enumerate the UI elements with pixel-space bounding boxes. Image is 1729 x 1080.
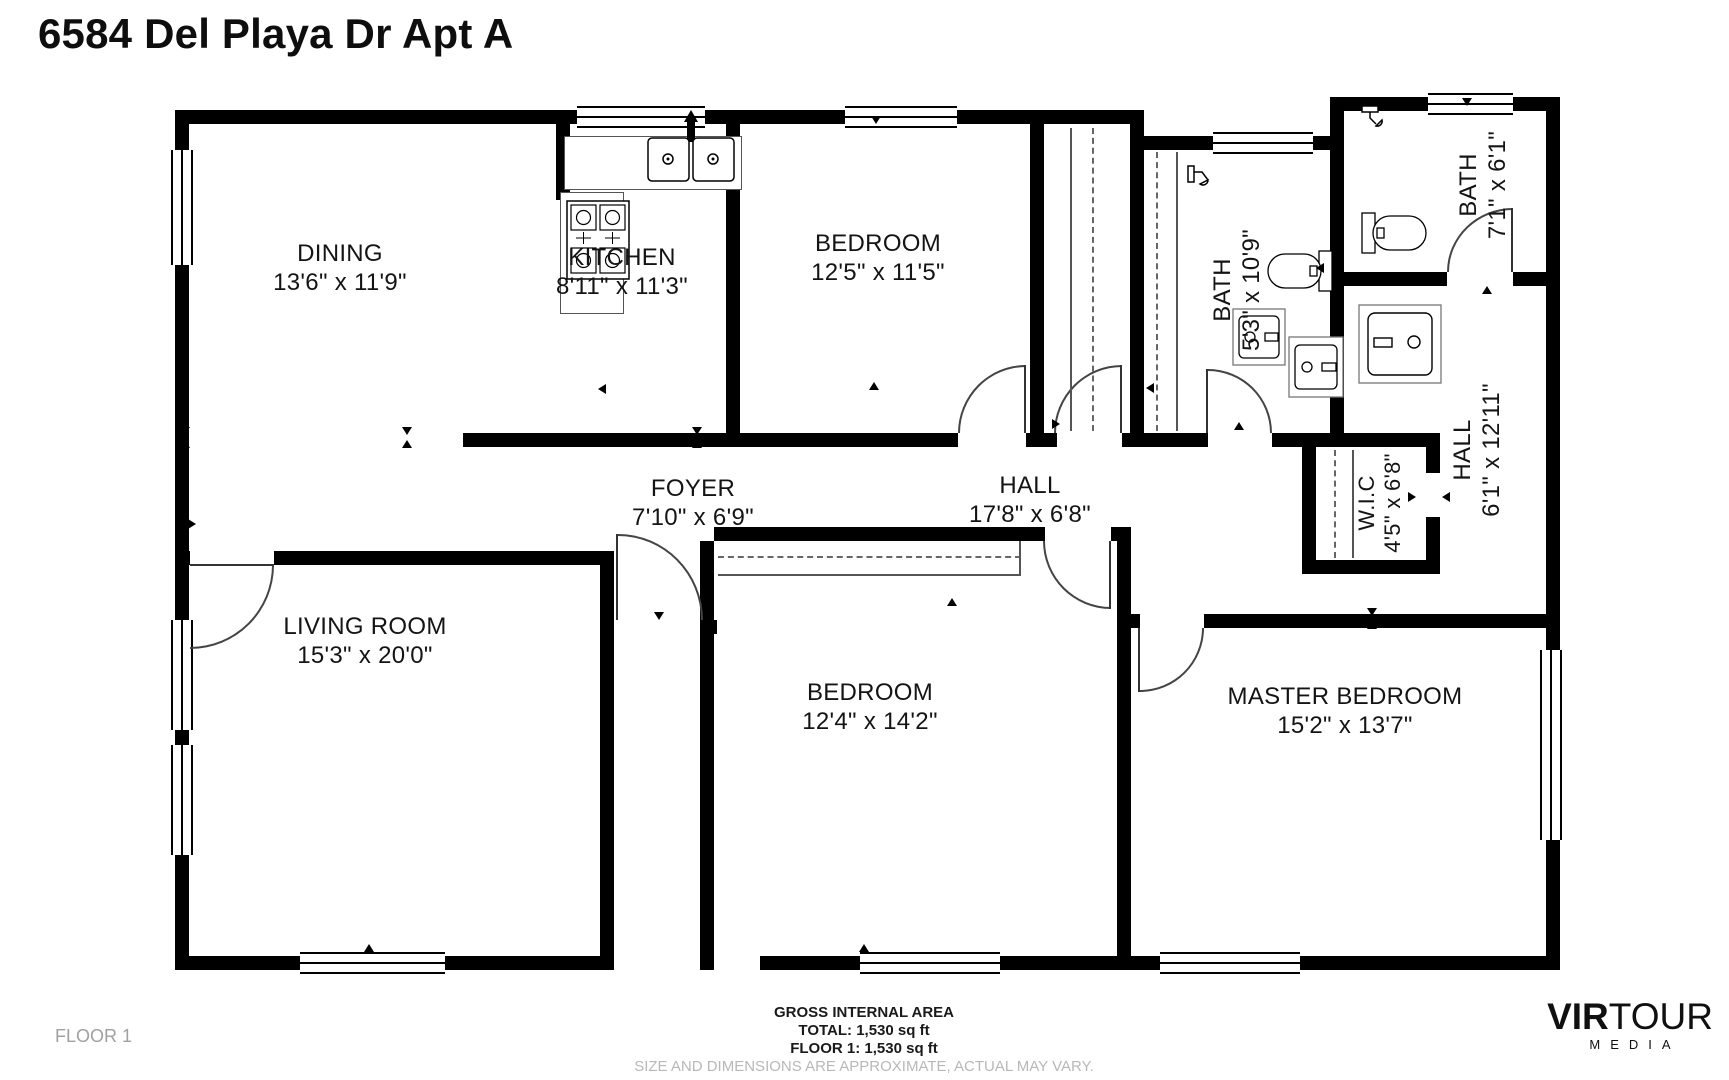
toilet-icon (1360, 212, 1428, 254)
wall-marker (402, 427, 412, 435)
wall (760, 956, 860, 970)
wall (1546, 840, 1560, 970)
wall (175, 551, 190, 565)
room-label-bath-main: BATH5'3" x 10'9" (1208, 229, 1266, 351)
door-arc (1054, 365, 1122, 433)
wall (600, 551, 614, 956)
wall-marker (188, 519, 196, 529)
closet-rod (718, 556, 1021, 558)
wall (1000, 956, 1160, 970)
wall (714, 527, 1045, 541)
room-label-bath-small: BATH7'1" x 6'1" (1454, 131, 1512, 239)
room-label-kitchen: KITCHEN8'11" x 11'3" (556, 243, 688, 301)
room-label-hall-main: HALL17'8" x 6'8" (969, 471, 1091, 529)
wall-marker (738, 434, 746, 444)
wall-marker (180, 440, 190, 448)
door-leaf (1138, 628, 1140, 692)
sink-icon (1288, 336, 1344, 398)
door-leaf (1120, 365, 1122, 433)
room-label-bedroom-top: BEDROOM12'5" x 11'5" (811, 229, 945, 287)
wall (175, 110, 577, 124)
shower-icon (1360, 104, 1390, 134)
wall-marker (1482, 286, 1492, 294)
wall (1111, 527, 1131, 541)
door-leaf (1206, 369, 1208, 433)
wall (175, 110, 189, 150)
sink-icon (1358, 304, 1442, 384)
wall (1300, 956, 1560, 970)
area-summary: GROSS INTERNAL AREA TOTAL: 1,530 sq ft F… (634, 1004, 1094, 1076)
wall (463, 433, 958, 447)
wall-marker (859, 944, 869, 952)
door-arc (1140, 628, 1204, 692)
closet-line (1070, 128, 1072, 431)
wall (1117, 628, 1131, 970)
room-label-bedroom-bottom: BEDROOM12'4" x 14'2" (802, 678, 938, 736)
wall-marker (1234, 422, 1244, 430)
wall-marker (1316, 263, 1324, 273)
wall-marker (366, 112, 376, 120)
window (171, 745, 193, 855)
wall-marker (692, 440, 702, 448)
shower-curtain-line (1156, 152, 1158, 431)
room-label-dining: DINING13'6" x 11'9" (273, 239, 407, 297)
room-label-master: MASTER BEDROOM15'2" x 13'7" (1228, 682, 1463, 740)
logo-subtitle: MEDIA (1532, 1037, 1728, 1052)
gross-area-title: GROSS INTERNAL AREA (634, 1004, 1094, 1022)
wall-marker (1462, 98, 1472, 106)
wall-marker (871, 116, 881, 124)
wall-marker (947, 598, 957, 606)
wall-marker (1367, 608, 1377, 616)
door-arc (190, 565, 274, 649)
wall (1513, 272, 1546, 286)
virtour-media-logo: VIRTOUR MEDIA (1532, 998, 1728, 1052)
wall (1272, 433, 1440, 447)
wall-marker (1052, 419, 1060, 429)
door-arc (958, 365, 1026, 433)
window (845, 106, 957, 128)
wall-marker (598, 384, 606, 394)
wall (1026, 433, 1057, 447)
wall (445, 956, 614, 970)
room-label-wic: W.I.C4'5" x 6'8" (1354, 453, 1406, 553)
door-leaf (1024, 365, 1026, 433)
wall (1302, 447, 1316, 574)
total-area: TOTAL: 1,530 sq ft (634, 1022, 1094, 1040)
wall (175, 956, 300, 970)
window (300, 952, 445, 974)
floor-area: FLOOR 1: 1,530 sq ft (634, 1040, 1094, 1058)
wall (703, 620, 717, 634)
closet-rod (1334, 450, 1336, 558)
wall-marker (402, 440, 412, 448)
window (1160, 952, 1300, 974)
room-label-foyer: FOYER7'10" x 6'9" (632, 474, 754, 532)
window (1213, 132, 1313, 154)
floor-indicator: FLOOR 1 (55, 1026, 132, 1047)
wall (1302, 560, 1440, 574)
closet-line (718, 574, 1021, 576)
floor-plan: DINING13'6" x 11'9" KITCHEN8'11" x 11'3"… (0, 0, 1729, 1080)
wall (175, 730, 189, 745)
kitchen-sink-icon (646, 108, 736, 184)
door-leaf (616, 534, 618, 620)
wall-marker (1408, 492, 1416, 502)
wall (1426, 447, 1440, 473)
tub-line (1176, 152, 1178, 431)
wall (1130, 110, 1144, 433)
window (1540, 650, 1562, 840)
closet-rod (1092, 128, 1094, 431)
wall-marker (180, 427, 190, 435)
door-arc (618, 534, 703, 620)
wall (1131, 614, 1140, 628)
window (860, 952, 1000, 974)
wall-marker (869, 382, 879, 390)
wall-marker (654, 612, 664, 620)
wall (274, 551, 614, 565)
door-leaf (190, 564, 274, 566)
wall (1144, 136, 1215, 150)
floor-plan-page: { "title": "6584 Del Playa Dr Apt A", "r… (0, 0, 1729, 1080)
wall (957, 110, 1144, 124)
wall (700, 541, 714, 970)
wall (1344, 272, 1447, 286)
wall-marker (692, 427, 702, 435)
closet-line (1019, 541, 1021, 576)
door-leaf (1109, 541, 1111, 609)
wall (1144, 433, 1208, 447)
room-label-living: LIVING ROOM15'3" x 20'0" (283, 612, 446, 670)
wall-marker (1367, 621, 1377, 629)
wall-marker (364, 944, 374, 952)
window (171, 150, 193, 265)
wall (1546, 97, 1560, 650)
shower-icon (1186, 164, 1216, 194)
wall (1117, 541, 1131, 628)
door-arc (1043, 541, 1111, 609)
wall (175, 855, 189, 970)
logo-wordmark: VIRTOUR (1532, 998, 1728, 1036)
wall-marker (1146, 383, 1154, 393)
wall (1030, 124, 1044, 433)
disclaimer: SIZE AND DIMENSIONS ARE APPROXIMATE, ACT… (634, 1058, 1094, 1076)
wall (1122, 433, 1144, 447)
room-label-hall-side: HALL6'1" x 12'11" (1448, 383, 1506, 517)
